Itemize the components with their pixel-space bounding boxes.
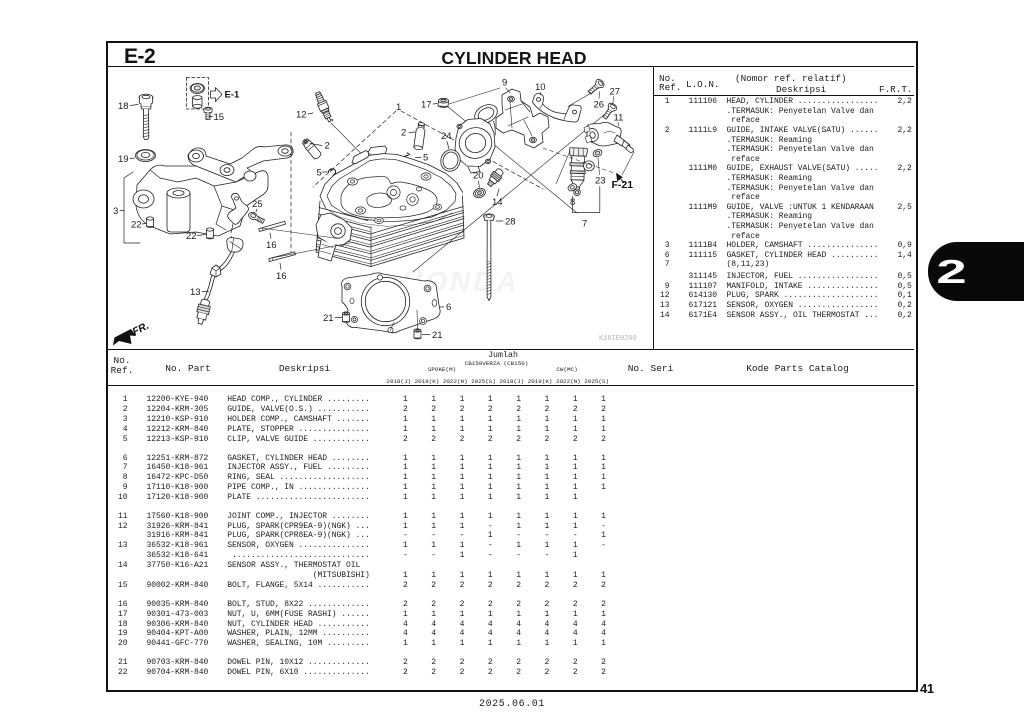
svg-text:24: 24 (441, 131, 452, 142)
svg-text:5: 5 (423, 153, 428, 164)
svg-text:21: 21 (323, 313, 334, 324)
svg-text:28: 28 (505, 217, 516, 228)
svg-text:11: 11 (614, 113, 624, 124)
svg-text:26: 26 (594, 100, 605, 111)
svg-text:1: 1 (396, 102, 401, 113)
svg-text:12: 12 (296, 110, 307, 121)
svg-text:14: 14 (492, 197, 503, 208)
svg-text:13: 13 (190, 287, 201, 298)
svg-text:22: 22 (186, 231, 197, 242)
svg-text:2: 2 (401, 128, 406, 139)
svg-text:27: 27 (610, 87, 621, 98)
svg-text:5: 5 (317, 168, 322, 179)
svg-text:FR.: FR. (130, 320, 151, 338)
svg-text:20: 20 (473, 171, 484, 182)
svg-text:F-21: F-21 (612, 179, 634, 191)
svg-text:22: 22 (131, 220, 142, 231)
svg-text:16: 16 (266, 240, 277, 251)
svg-text:18: 18 (118, 101, 129, 112)
svg-text:3: 3 (113, 206, 118, 217)
svg-text:8: 8 (570, 197, 575, 208)
svg-text:21: 21 (432, 330, 443, 341)
svg-text:E-1: E-1 (225, 90, 241, 101)
svg-text:7: 7 (582, 219, 587, 230)
svg-text:9: 9 (502, 78, 507, 89)
svg-text:23: 23 (595, 176, 606, 187)
svg-text:16: 16 (276, 271, 287, 282)
svg-text:10: 10 (535, 82, 546, 93)
svg-text:15: 15 (214, 112, 225, 123)
svg-text:19: 19 (118, 154, 129, 165)
svg-text:6: 6 (446, 302, 451, 313)
svg-text:17: 17 (421, 100, 432, 111)
svg-text:25: 25 (252, 199, 263, 210)
svg-text:2: 2 (325, 141, 330, 152)
